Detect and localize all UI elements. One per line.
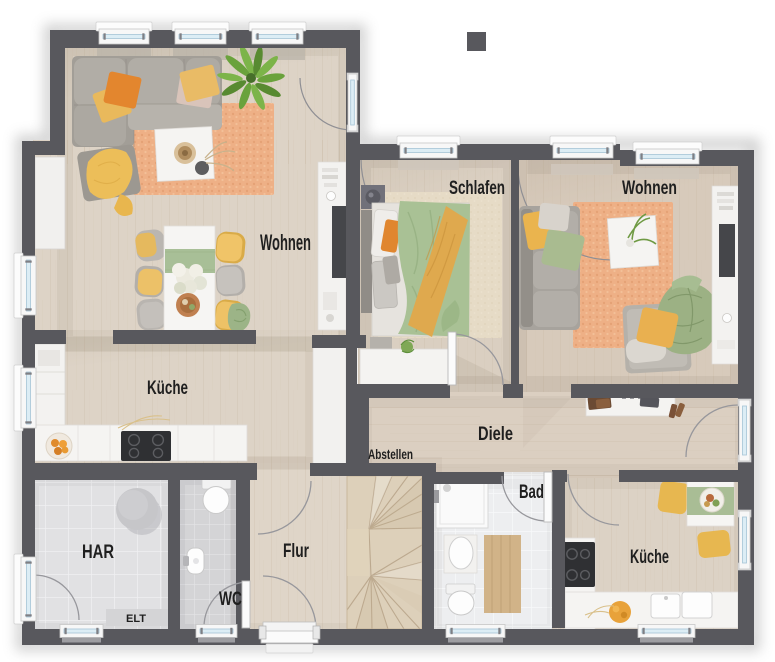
svg-text:Abstellen: Abstellen bbox=[368, 446, 413, 462]
svg-text:Schlafen: Schlafen bbox=[449, 178, 505, 199]
svg-text:Diele: Diele bbox=[478, 424, 513, 445]
svg-text:ELT: ELT bbox=[126, 613, 146, 625]
svg-text:Küche: Küche bbox=[630, 547, 669, 568]
svg-text:Flur: Flur bbox=[283, 541, 309, 562]
svg-text:HAR: HAR bbox=[82, 542, 114, 563]
svg-text:Küche: Küche bbox=[147, 378, 188, 399]
svg-text:Wohnen: Wohnen bbox=[622, 178, 677, 199]
svg-text:Bad: Bad bbox=[519, 482, 544, 503]
svg-text:Wohnen: Wohnen bbox=[260, 230, 311, 255]
svg-text:WC: WC bbox=[219, 589, 242, 610]
